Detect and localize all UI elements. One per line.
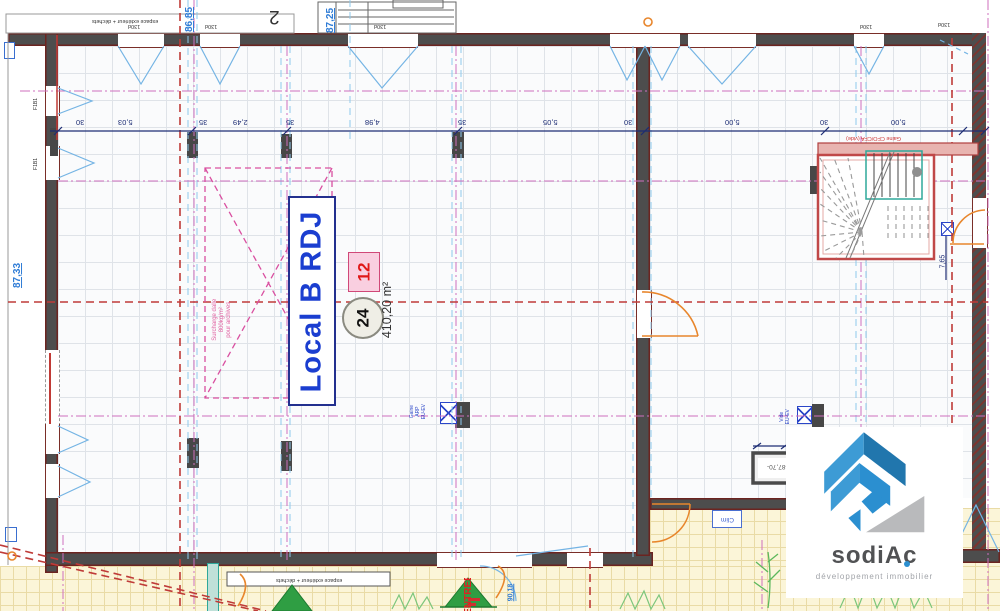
door-opening-top-3: [348, 33, 418, 48]
room-label-box: Local B RDJ: [288, 196, 336, 406]
surcharge-note: Surcharge dalle 800kg/m² pour archives: [205, 270, 241, 370]
pillar: [187, 132, 198, 158]
pillar: [281, 441, 292, 471]
pillar: [812, 404, 824, 428]
grid-ref-box: [5, 527, 17, 542]
pillar: [50, 128, 58, 156]
door-opening-left-4: [45, 464, 60, 498]
dim-label-vertical: 7,65: [936, 246, 949, 276]
area-label: 410,20 m²: [376, 268, 398, 352]
duct-x-marker: [941, 222, 954, 236]
sodiac-logo-icon: [822, 429, 932, 541]
room-label: Local B RDJ: [296, 210, 329, 392]
dim-label: 30: [610, 117, 646, 128]
door-opening-top-5: [688, 33, 756, 48]
dim-label: 35: [272, 117, 308, 128]
pillar: [455, 402, 470, 428]
entree-label: ENTREE: [458, 578, 478, 611]
dim-label: 2,49: [220, 117, 260, 128]
dim-label: 35: [444, 117, 480, 128]
pillar: [810, 166, 822, 194]
sodiac-logo-text: sodiAc: [786, 542, 963, 570]
dim-label: 5,03: [105, 117, 145, 128]
dim-label: 5,05: [530, 117, 570, 128]
dim-label: 30: [60, 117, 100, 128]
window-label: 130d: [932, 20, 956, 28]
door-type-label: F1B1: [30, 152, 42, 176]
clim-box: Clim: [712, 510, 742, 528]
exterior-note-bottom: espace extérieur + déchets: [230, 574, 388, 585]
wall-right: [972, 33, 986, 557]
door-opening-top-4: [610, 33, 680, 48]
pillar: [281, 134, 292, 158]
duct-x-marker: [440, 402, 457, 424]
sodiac-logo-tagline: développement immobilier: [786, 572, 963, 581]
window-label: 130d: [368, 22, 392, 30]
parking-count: 24: [353, 309, 373, 328]
level-marker: 87,33: [10, 250, 26, 300]
door-opening-left-1: [45, 86, 60, 116]
door-opening-left-3: [45, 424, 60, 454]
duct-x-marker: [797, 406, 812, 424]
fire-line-marker: [49, 353, 51, 424]
pillar: [452, 132, 464, 158]
door-type-label: F1B1: [30, 92, 42, 116]
dim-label: 4,98: [352, 117, 392, 128]
wall-bottom-left: [45, 552, 653, 566]
level-marker: 90,18: [504, 574, 517, 610]
grid-ref-box: [4, 42, 15, 59]
window-label: 130d: [199, 22, 223, 30]
door-opening-bottom-1: [437, 552, 532, 568]
dim-label: 35: [185, 117, 221, 128]
floor-plan-canvas: Local B RDJ 12 24 410,20 m² Surcharge da…: [0, 0, 1000, 611]
door-opening-top-6: [854, 33, 884, 48]
logo-dot: [904, 561, 910, 567]
door-opening-top-2: [200, 33, 240, 48]
dim-label: 30: [806, 117, 842, 128]
gaine-arp-note: Gaine ARP EU-EV: [404, 390, 434, 434]
level-marker: 87,25: [324, 4, 337, 36]
window-label: 130d: [854, 22, 878, 30]
lot-number: 12: [354, 263, 374, 282]
dashed-opening-left: [45, 350, 60, 426]
door-opening-top-1: [118, 33, 164, 48]
dim-label: 5,00: [878, 117, 918, 128]
door-opening-bottom-2: [567, 552, 603, 568]
grid-axis-label: 2: [262, 4, 286, 28]
door-opening-divider: [636, 290, 652, 338]
logo-card: sodiAc développement immobilier: [786, 427, 963, 598]
fence-strip: [207, 563, 219, 611]
window-label: 130d: [122, 22, 146, 30]
door-opening-right-wall: [972, 198, 988, 248]
pillar: [187, 438, 199, 468]
gaine-cfo-note: Gaine CFO/CFA (vide): [834, 133, 914, 143]
dim-label: 5,00: [712, 117, 752, 128]
